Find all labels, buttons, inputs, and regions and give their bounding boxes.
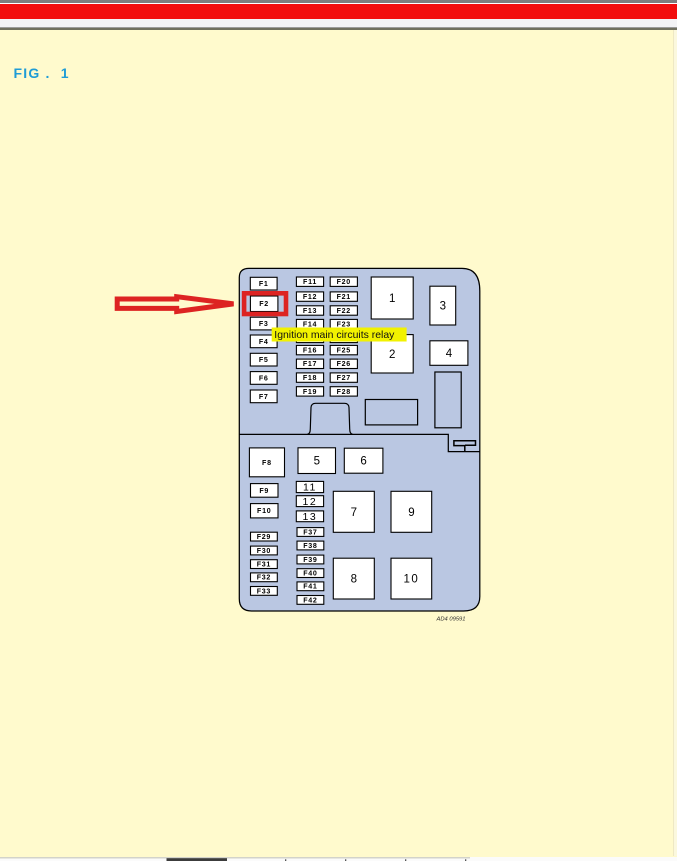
svg-text:F2: F2 — [259, 300, 269, 308]
svg-text:F27: F27 — [337, 374, 351, 382]
svg-text:F33: F33 — [257, 587, 271, 595]
svg-text:F11: F11 — [303, 278, 317, 286]
svg-text:F29: F29 — [257, 533, 271, 541]
svg-text:F18: F18 — [303, 374, 317, 382]
svg-text:F7: F7 — [259, 393, 269, 401]
svg-text:F12: F12 — [303, 293, 317, 301]
svg-text:F37: F37 — [303, 528, 317, 536]
svg-text:13: 13 — [303, 511, 318, 523]
svg-text:F17: F17 — [303, 360, 317, 368]
svg-text:2: 2 — [389, 349, 395, 361]
svg-text:F21: F21 — [337, 293, 351, 301]
svg-text:10: 10 — [404, 574, 420, 586]
svg-text:F9: F9 — [259, 487, 269, 495]
svg-text:5: 5 — [314, 456, 320, 468]
svg-text:F14: F14 — [303, 321, 317, 329]
svg-text:F16: F16 — [303, 347, 317, 355]
svg-text:F19: F19 — [303, 388, 317, 396]
svg-text:F40: F40 — [303, 570, 317, 578]
svg-text:F26: F26 — [337, 360, 351, 368]
svg-text:F38: F38 — [303, 542, 317, 550]
svg-text:11: 11 — [303, 482, 317, 494]
svg-text:F6: F6 — [259, 374, 269, 382]
svg-text:6: 6 — [360, 456, 366, 468]
svg-text:4: 4 — [446, 348, 453, 360]
svg-text:F25: F25 — [337, 347, 351, 355]
svg-text:F23: F23 — [337, 321, 351, 329]
svg-text:F30: F30 — [257, 547, 271, 555]
svg-text:3: 3 — [440, 301, 446, 313]
svg-text:F20: F20 — [337, 278, 351, 286]
svg-text:Ignition main circuits relay: Ignition main circuits relay — [274, 330, 395, 341]
svg-text:9: 9 — [408, 507, 414, 519]
svg-text:8: 8 — [351, 574, 357, 586]
svg-text:F41: F41 — [303, 583, 317, 591]
svg-text:F39: F39 — [303, 556, 317, 564]
svg-text:F3: F3 — [259, 320, 269, 328]
svg-text:12: 12 — [303, 496, 318, 508]
svg-text:F4: F4 — [259, 338, 269, 346]
svg-text:AD4 09591: AD4 09591 — [436, 617, 466, 623]
svg-text:F28: F28 — [337, 388, 351, 396]
svg-text:F42: F42 — [303, 596, 317, 604]
svg-text:F22: F22 — [337, 307, 351, 315]
svg-text:F13: F13 — [303, 307, 317, 315]
svg-text:F32: F32 — [257, 574, 271, 582]
svg-text:F31: F31 — [257, 561, 271, 569]
svg-text:1: 1 — [389, 293, 395, 305]
svg-text:F5: F5 — [259, 356, 269, 364]
svg-text:F10: F10 — [257, 507, 271, 515]
svg-text:F8: F8 — [262, 459, 272, 467]
svg-text:F1: F1 — [259, 280, 269, 288]
svg-text:7: 7 — [351, 507, 357, 519]
